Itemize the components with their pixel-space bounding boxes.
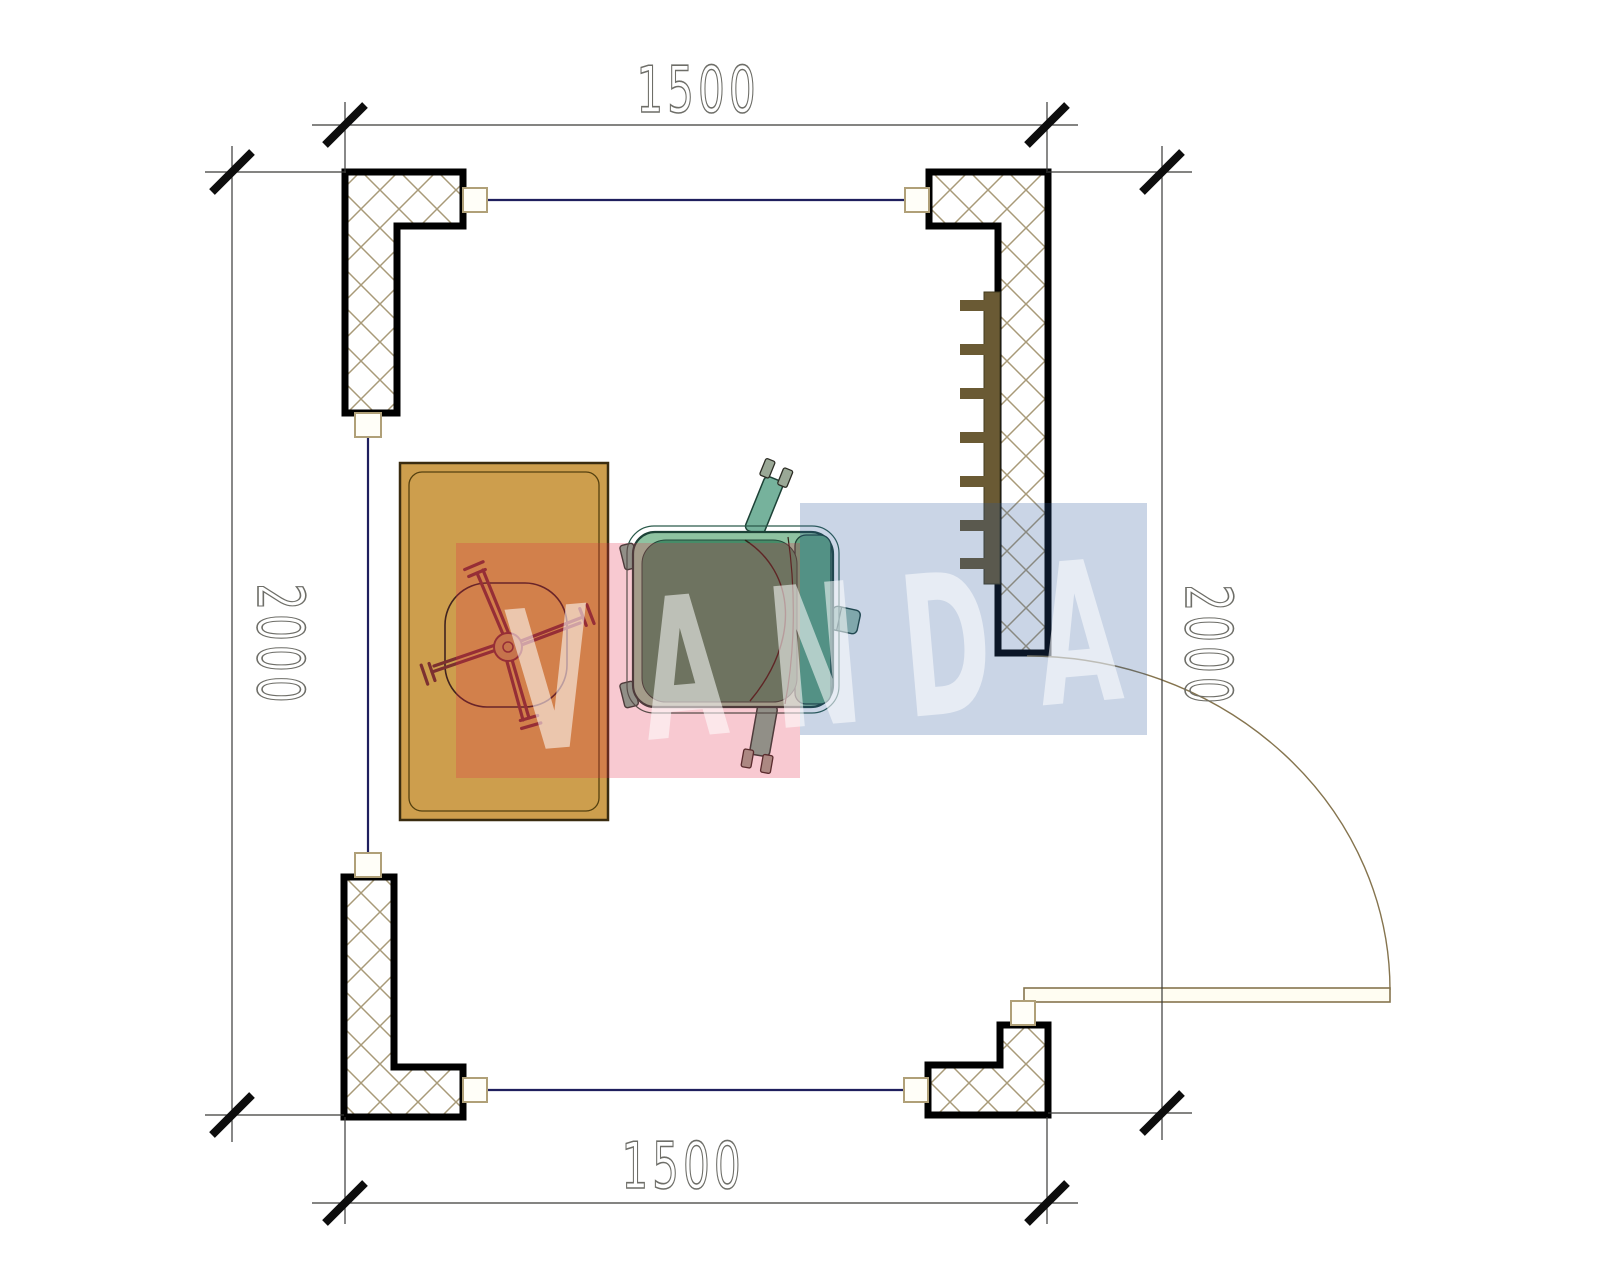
radiator-fin [960,388,985,399]
connector-plate [463,188,487,212]
connector-plate [463,1078,487,1102]
connector-plate [905,188,929,212]
radiator-fin [960,476,985,487]
door-leaf [1024,988,1390,1002]
dim-label-left: 2000 [243,583,317,706]
floor-plan-page: 1500 1500 2000 2000 V A N D A [0,0,1600,1280]
connector-plate [355,413,381,437]
connector-plate [355,853,381,877]
connector-plate [904,1078,928,1102]
floor-plan-drawing: 1500 1500 2000 2000 V A N D A [0,0,1600,1280]
radiator-fin [960,300,985,311]
dim-label-top: 1500 [636,53,759,127]
radiator-fin [960,432,985,443]
dim-label-bottom: 1500 [621,1129,744,1203]
wall-bottom-left [344,877,463,1117]
wall-top-left [345,172,463,413]
dim-label-right: 2000 [1171,584,1245,707]
door-hinge-plate [1011,1001,1035,1025]
wall-bottom-right [928,1025,1048,1115]
watermark: V A N D A [456,503,1147,798]
radiator-fin [960,344,985,355]
